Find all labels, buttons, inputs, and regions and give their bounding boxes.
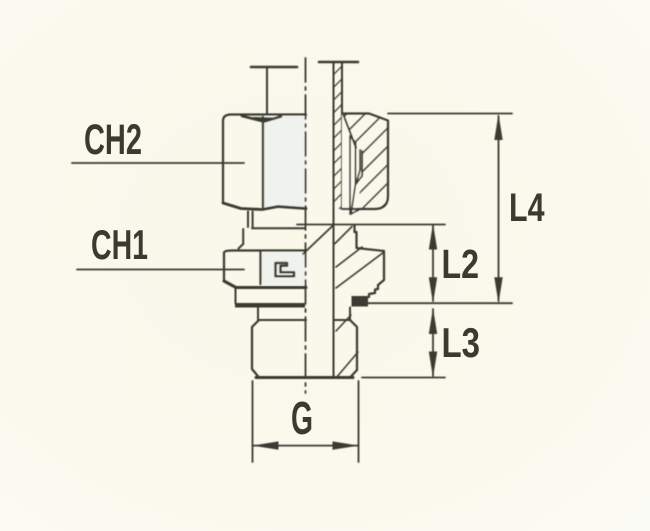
svg-text:L4: L4 — [509, 186, 545, 230]
svg-text:L2: L2 — [442, 241, 480, 287]
svg-text:L3: L3 — [442, 319, 481, 366]
svg-text:CH1: CH1 — [91, 221, 148, 268]
svg-text:G: G — [291, 392, 313, 444]
svg-text:CH2: CH2 — [84, 116, 142, 164]
